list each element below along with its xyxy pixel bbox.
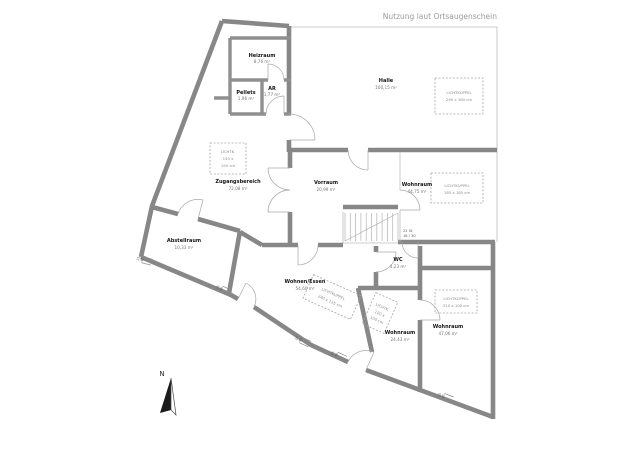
room-name-wohnraum-sued: Wohnraum [385, 330, 416, 336]
skylight-mitte-label: LICHTKUPPEL [444, 183, 470, 188]
room-area-wohnraum-mitte: 44,75 m² [407, 189, 426, 194]
room-area-zugangsbereich: 72,08 m² [228, 186, 247, 191]
room-area-wohnraum-sued: 24,43 m² [390, 337, 409, 342]
north-label: N [159, 370, 164, 378]
room-name-abstellraum: Abstellraum [167, 238, 201, 244]
room-name-halle: Halle [379, 78, 394, 84]
room-area-halle: 100,15 m² [375, 85, 397, 90]
room-area-abstellraum: 10,33 m² [174, 245, 193, 250]
interior-walls [152, 26, 497, 392]
room-area-heizraum: 8,76 m² [254, 59, 271, 64]
door-swings [178, 64, 440, 370]
skylight-zugang: LICHTK. 150 x 150 cm [210, 143, 246, 174]
north-arrow-icon: N [159, 370, 176, 415]
room-area-pellets: 1,96 m² [238, 96, 255, 101]
room-area-wc: 4,23 m² [390, 264, 407, 269]
skylight-mitte-size: 185 x 185 cm [444, 190, 470, 195]
skylight-halle: LICHTKUPPEL 295 x 180 cm [435, 78, 483, 114]
room-name-zugangsbereich: Zugangsbereich [215, 179, 261, 185]
room-name-wc: WC [393, 257, 403, 263]
site-boundary-lines [289, 27, 497, 242]
exterior-walls [141, 21, 493, 419]
plan-annotation: Nutzung laut Ortsaugenschein [383, 12, 497, 21]
stairs-count-label: 22 St [403, 229, 413, 233]
room-name-vorraum: Vorraum [314, 180, 338, 186]
staircase: 22 St 18 / 30 [345, 213, 416, 241]
room-name-wohnen-essen: Wohnen/Essen [285, 279, 326, 285]
skylight-zugang-size1: 150 x [223, 156, 234, 161]
stairs-rise-run-label: 18 / 30 [403, 234, 416, 238]
skylight-halle-size: 295 x 180 cm [446, 97, 472, 102]
skylight-ost-size: 310 x 100 cm [443, 303, 469, 308]
room-area-vorraum: 20,99 m² [316, 187, 335, 192]
skylight-zugang-size2: 150 cm [221, 163, 236, 168]
skylight-ost: LICHTKUPPEL 310 x 100 cm [435, 290, 477, 313]
floor-plan-svg: Nutzung laut Ortsaugenschein [0, 0, 640, 453]
room-name-wohnraum-ost: Wohnraum [433, 324, 464, 330]
skylight-ost-label: LICHTKUPPEL [443, 296, 469, 301]
room-name-wohnraum-mitte: Wohnraum [402, 182, 433, 188]
skylight-halle-label: LICHTKUPPEL [446, 90, 472, 95]
room-area-wohnen-essen: 54,60 m² [295, 286, 314, 291]
skylight-mitte: LICHTKUPPEL 185 x 185 cm [431, 173, 483, 203]
floor-plan-canvas: Nutzung laut Ortsaugenschein [0, 0, 640, 453]
skylight-zugang-label: LICHTK. [221, 149, 236, 154]
room-area-ar: 1,77 m² [264, 92, 281, 97]
room-area-wohnraum-ost: 47,06 m² [438, 331, 457, 336]
